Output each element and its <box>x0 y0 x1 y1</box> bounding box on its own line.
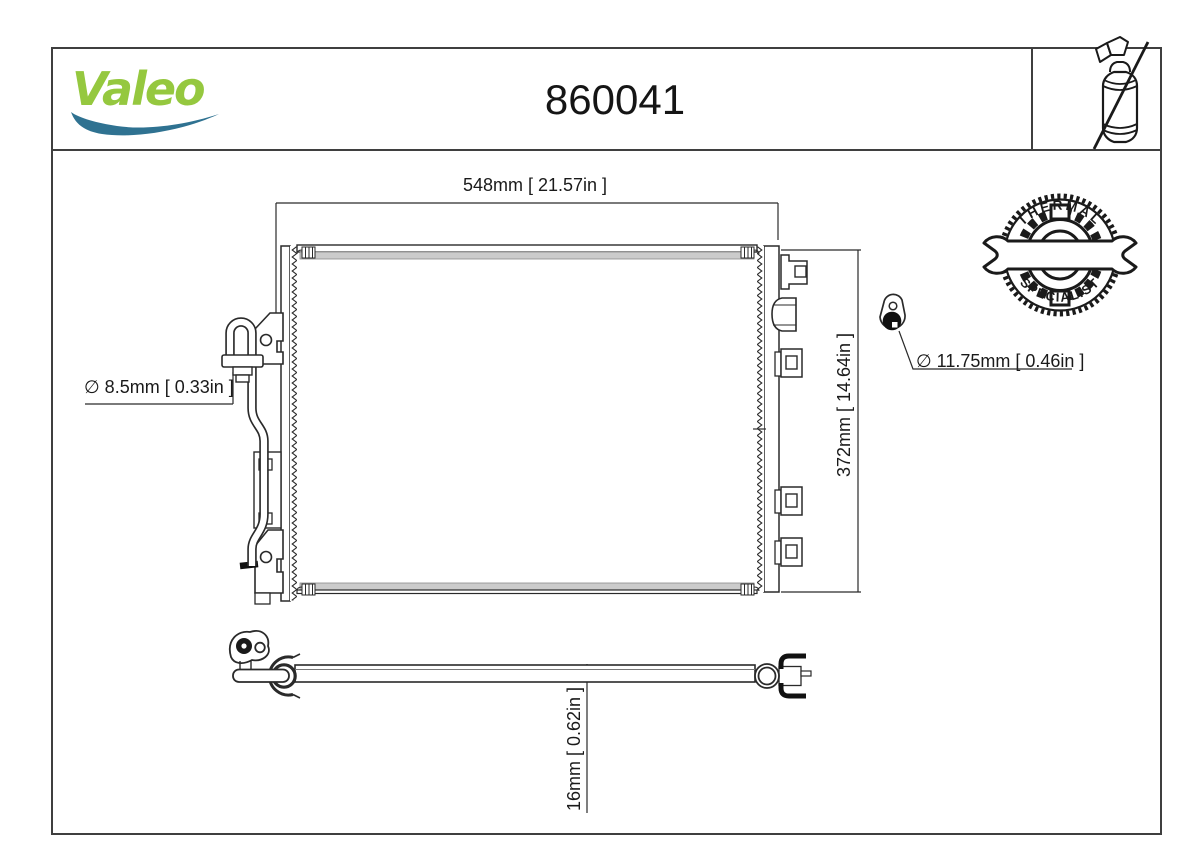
drawing-sheet: Valeo 860041 548mm [ 21.57in ] 372mm [ 1… <box>0 0 1200 848</box>
right-bracket-3 <box>775 487 802 515</box>
core-top-bar <box>297 245 757 252</box>
core-bottom-band <box>300 583 754 590</box>
core-bottom-bar <box>297 590 757 594</box>
side-core-bar <box>295 665 755 682</box>
left-fin-edge <box>290 247 297 601</box>
dimension-lines <box>85 203 1072 813</box>
wrench-icon <box>984 237 1136 274</box>
condenser-side-view <box>230 631 811 698</box>
core-top-band <box>300 252 754 259</box>
spray-can-prohibited-icon <box>1094 37 1148 149</box>
right-bracket-4 <box>775 538 802 566</box>
left-lower-bracket <box>255 530 283 604</box>
right-tank <box>764 246 779 592</box>
technical-drawing: THERMAL SPECIALIST <box>0 0 1200 848</box>
side-left-tube <box>233 670 289 683</box>
pipe-flange <box>222 355 263 382</box>
right-bulge <box>772 298 796 331</box>
condenser-front-view <box>222 245 807 604</box>
grommet-fitting <box>880 294 905 330</box>
side-right-body <box>779 667 801 686</box>
right-bracket-1 <box>781 255 807 289</box>
corner-fittings <box>297 247 759 595</box>
right-bracket-2 <box>775 349 802 377</box>
thermal-specialist-badge: THERMAL SPECIALIST <box>984 196 1136 314</box>
right-fin-edge <box>757 247 764 591</box>
